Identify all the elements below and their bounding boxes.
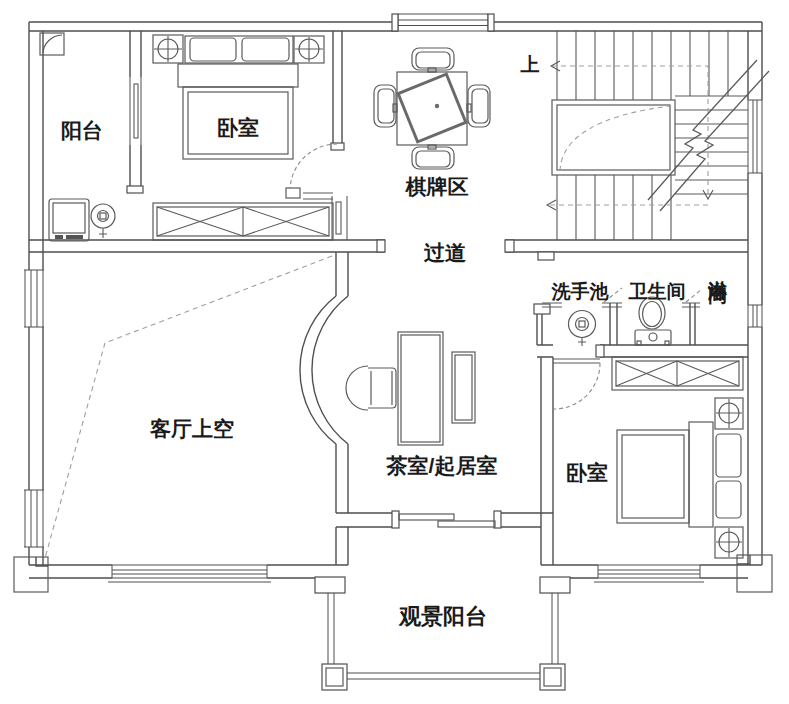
staircase-icon	[547, 31, 769, 240]
label-toilet-room: 卫生间	[628, 281, 686, 302]
label-shower-room: 淋浴间	[707, 265, 729, 305]
double-bed-icon	[617, 398, 743, 558]
label-balcony-north: 阳台	[61, 119, 103, 142]
floor-plan-canvas: 阳台 卧室 棋牌区 上 过道 洗手池 卫生间 淋浴间 客厅上空 茶室/起居室 卧…	[0, 0, 789, 704]
pillow-icon	[242, 38, 289, 61]
label-view-balcony: 观景阳台	[398, 604, 487, 629]
landing-guide	[560, 106, 670, 171]
bench-icon	[452, 352, 475, 423]
void-diagonal-line	[45, 256, 332, 558]
door-swing-icon	[290, 144, 337, 191]
label-bedroom-north: 卧室	[217, 116, 259, 139]
label-corridor: 过道	[423, 241, 467, 264]
pillow-icon	[190, 38, 236, 61]
washing-machine-icon	[49, 199, 89, 241]
door-leaf-icon	[286, 188, 300, 198]
wardrobe-cross-icon	[612, 357, 743, 390]
floor-drain-icon	[91, 204, 115, 238]
railing-icon	[315, 577, 570, 690]
label-chess-card-area: 棋牌区	[405, 175, 469, 198]
label-bedroom-south: 卧室	[566, 461, 608, 484]
pillow-icon	[716, 434, 741, 477]
toilet-icon	[635, 297, 671, 345]
break-line	[648, 60, 757, 200]
armchair-icon	[346, 366, 396, 410]
door-swing-icon	[554, 363, 600, 409]
room-labels: 阳台 卧室 棋牌区 上 过道 洗手池 卫生间 淋浴间 客厅上空 茶室/起居室 卧…	[61, 54, 729, 629]
wardrobe-cross-icon	[153, 203, 333, 240]
label-living-room-void: 客厅上空	[149, 417, 234, 440]
sliding-door-icon	[392, 511, 501, 528]
stair-void	[552, 100, 675, 175]
washbasin-icon	[569, 311, 596, 347]
mahjong-table-icon	[374, 48, 490, 169]
double-bed-icon	[153, 35, 324, 159]
pillow-icon	[716, 481, 741, 518]
label-washbasin: 洗手池	[551, 281, 610, 302]
floor-plan-drawing: 阳台 卧室 棋牌区 上 过道 洗手池 卫生间 淋浴间 客厅上空 茶室/起居室 卧…	[0, 0, 789, 704]
label-tea-living-room: 茶室/起居室	[386, 454, 498, 477]
curved-bay-wall	[300, 296, 348, 444]
tea-table-icon	[398, 332, 443, 445]
label-stairs-up: 上	[520, 54, 540, 75]
